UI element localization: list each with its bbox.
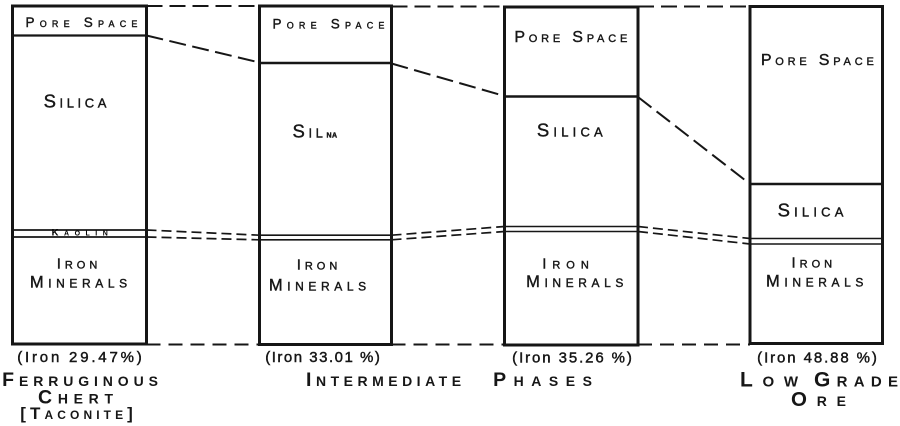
svg-text:Silica: Silica (44, 91, 110, 112)
svg-text:Minerals: Minerals (766, 273, 868, 291)
svg-text:[Taconite]: [Taconite] (20, 404, 137, 423)
svg-text:Phases: Phases (493, 369, 599, 391)
svg-text:Silica: Silica (537, 120, 607, 141)
svg-text:(Iron 35.26 %): (Iron 35.26 %) (512, 350, 634, 367)
svg-text:Ore: Ore (791, 388, 856, 411)
svg-text:Kaolin: Kaolin (52, 228, 114, 239)
svg-text:Intermediate: Intermediate (306, 369, 466, 391)
svg-text:Minerals: Minerals (526, 273, 628, 291)
svg-text:Silica: Silica (778, 200, 848, 221)
svg-text:Iron: Iron (791, 255, 836, 272)
svg-text:Pore Space: Pore Space (273, 17, 390, 32)
svg-text:Pore Space: Pore Space (514, 29, 631, 46)
svg-text:(Iron 48.88 %): (Iron 48.88 %) (757, 350, 879, 367)
svg-text:Pore Space: Pore Space (761, 52, 878, 69)
svg-text:(Iron 29.47%): (Iron 29.47%) (17, 349, 144, 366)
svg-text:(Iron 33.01 %): (Iron 33.01 %) (265, 349, 381, 366)
svg-text:Iron: Iron (297, 257, 342, 274)
svg-text:Iron: Iron (542, 256, 595, 273)
svg-text:Minerals: Minerals (30, 274, 132, 292)
svg-text:Pore Space: Pore Space (26, 15, 143, 30)
svg-text:Iron: Iron (57, 256, 102, 273)
svg-text:Minerals: Minerals (269, 277, 371, 295)
